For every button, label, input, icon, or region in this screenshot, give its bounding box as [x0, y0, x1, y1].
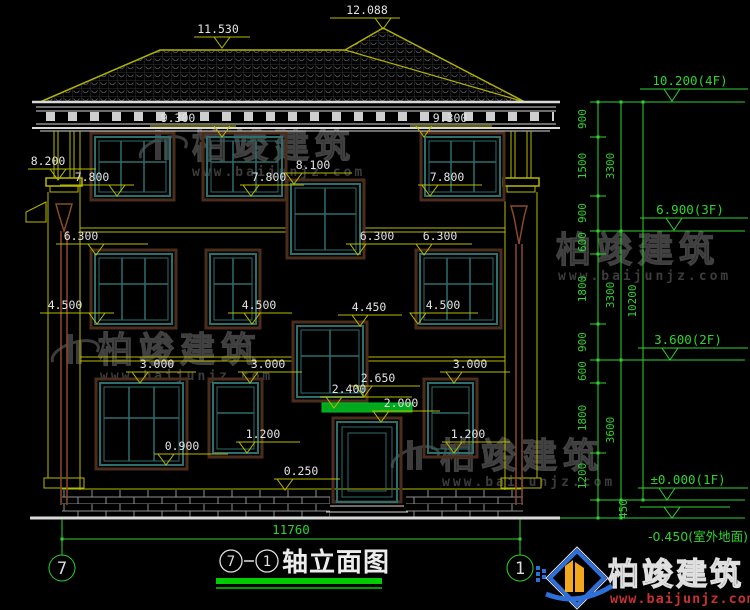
- drawing-title: 7 1 轴立面图: [216, 547, 390, 588]
- elev-label: 3.000: [140, 357, 175, 371]
- elev-label: 7.800: [430, 170, 465, 184]
- logo-brand-text: 柏竣建筑: [608, 557, 744, 593]
- dim-label: 450: [617, 499, 630, 519]
- window-3f-right: [421, 133, 504, 200]
- elev-label: 6.300: [360, 229, 395, 243]
- dim-label: 10200: [626, 284, 639, 317]
- watermark-brand: 柏竣建筑: [98, 330, 262, 371]
- dim-label: 3600: [604, 417, 617, 444]
- elev-label: 7.800: [252, 170, 287, 184]
- title-underline-thick: [216, 578, 382, 584]
- dim-label: 600: [576, 232, 589, 252]
- side-canopy: [26, 202, 46, 222]
- window-1f-mid-narrow: [209, 379, 262, 457]
- level-mark-outdoor-ground: -0.450(室外地面): [640, 507, 748, 544]
- axis-number: 7: [57, 559, 67, 579]
- elev-label: 4.450: [352, 300, 387, 314]
- plinth: [62, 489, 523, 518]
- page-title: 轴立面图: [282, 547, 390, 578]
- elev-label: 4.500: [426, 298, 461, 312]
- dim-label: 11760: [272, 522, 310, 537]
- elev-label: 4.500: [242, 298, 277, 312]
- elev-label: 1.200: [451, 427, 486, 441]
- dim-label: 900: [576, 203, 589, 223]
- title-axis-start: 7: [227, 554, 235, 570]
- window-2f-right: [416, 250, 501, 328]
- elev-mark-plinth: 0.250: [274, 464, 340, 490]
- elev-label: 0.250: [284, 464, 319, 478]
- elev-label: 2.000: [384, 396, 419, 410]
- dim-label: 1800: [576, 276, 589, 303]
- elev-label: 3.000: [251, 357, 286, 371]
- level-label: 10.200(4F): [652, 73, 727, 88]
- window-2f-mid-narrow: [206, 250, 260, 328]
- dim-label: 3300: [604, 282, 617, 309]
- axis-bubble-left: 7: [49, 555, 75, 581]
- level-label: -0.450(室外地面): [648, 529, 748, 544]
- axis-bubble-right: 1: [507, 555, 533, 581]
- stair-window-upper: [287, 180, 364, 258]
- elev-label: 11.530: [197, 22, 239, 36]
- logo-site-text: www.baijunjz.com: [610, 591, 750, 607]
- dim-label: 1200: [576, 463, 589, 490]
- elev-label: 9.300: [161, 111, 196, 125]
- level-label: 6.900(3F): [656, 202, 724, 217]
- level-mark-3f: 6.900(3F): [640, 202, 748, 230]
- level-label: 3.600(2F): [654, 332, 722, 347]
- elev-label: 8.100: [296, 158, 331, 172]
- dim-label: 3300: [604, 153, 617, 180]
- window-2f-left: [91, 250, 176, 328]
- elev-label: 2.400: [332, 382, 367, 396]
- door-step-area: [330, 490, 406, 518]
- level-label: ±0.000(1F): [650, 472, 725, 487]
- elev-label: 3.000: [453, 357, 488, 371]
- brand-logo: 柏竣建筑 www.baijunjz.com: [536, 547, 750, 609]
- pilaster-right: [501, 131, 541, 488]
- elev-label: 7.800: [75, 170, 110, 184]
- elev-label: 8.200: [31, 154, 66, 168]
- elev-label: 1.200: [246, 427, 281, 441]
- level-mark-1f: ±0.000(1F): [638, 472, 748, 500]
- dentil-row: [40, 112, 554, 121]
- elevation-drawing: 柏竣建筑 www.baijunjz.com 柏竣建筑 www.baijunjz.…: [0, 0, 750, 610]
- elev-mark-ridge-low: 11.530: [194, 22, 250, 48]
- watermark-logo-glyph: [392, 440, 438, 470]
- elev-label: 9.300: [433, 111, 468, 125]
- window-3f-left: [91, 133, 174, 200]
- dim-label: 600: [576, 361, 589, 381]
- elev-label: 6.300: [423, 229, 458, 243]
- watermark-logo-glyph: [52, 334, 98, 364]
- elev-label: 0.900: [165, 439, 200, 453]
- elev-mark-ridge-high: 12.088: [330, 3, 400, 29]
- elev-label: 4.500: [48, 298, 83, 312]
- level-mark-2f: 3.600(2F): [638, 332, 748, 360]
- dim-label: 1500: [576, 153, 589, 180]
- dim-label: 1800: [576, 405, 589, 432]
- dim-label: 900: [576, 332, 589, 352]
- level-mark-4f: 10.200(4F): [640, 73, 748, 101]
- title-axis-end: 1: [263, 554, 271, 570]
- axis-number: 1: [515, 559, 525, 579]
- cad-elevation-canvas: 柏竣建筑 www.baijunjz.com 柏竣建筑 www.baijunjz.…: [0, 0, 750, 610]
- roof: [40, 28, 525, 102]
- elev-label: 12.088: [346, 3, 388, 17]
- dim-label: 900: [576, 109, 589, 129]
- elev-label: 6.300: [64, 229, 99, 243]
